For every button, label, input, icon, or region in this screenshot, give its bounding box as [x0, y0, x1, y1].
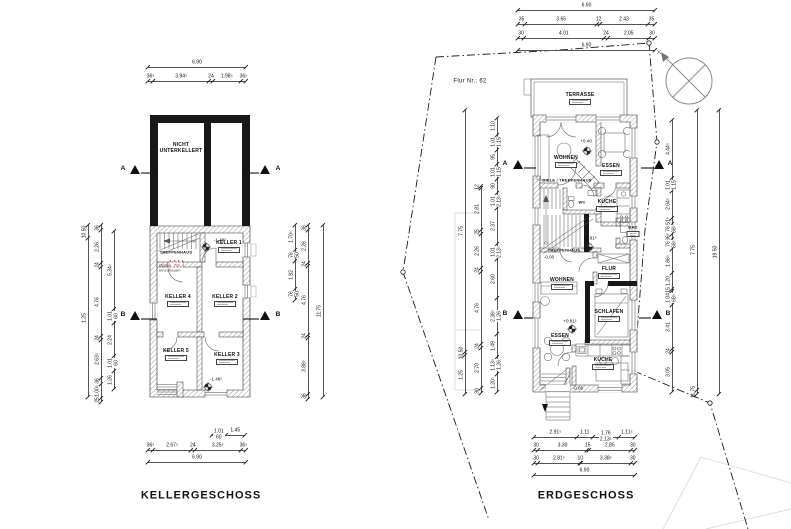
room-area-box	[216, 359, 238, 365]
room-area-box	[551, 284, 573, 290]
dim-value: 25	[95, 397, 101, 403]
dim-value: 2.70	[475, 363, 481, 373]
dim-value: 10.50	[82, 225, 88, 238]
keller-dim-top-detail: 36⁵3.94⁵241.98⁵36⁵	[148, 72, 246, 82]
level-marker-aussen: -0.86	[573, 385, 583, 390]
dim-value: 30	[475, 388, 481, 394]
room-area-box	[600, 170, 622, 176]
dim-value: 30	[630, 444, 636, 450]
dim-value: 2.26	[475, 246, 481, 256]
room-label-keller4: KELLER 4	[165, 294, 191, 300]
dim-value: 2.24	[108, 335, 114, 345]
section-letter-b: B	[666, 310, 671, 318]
keller-interior-walls	[157, 233, 243, 397]
dim-value: 24	[475, 267, 481, 273]
dim-value: 6.90	[580, 469, 590, 475]
room-label-essen-low: ESSEN	[551, 333, 569, 339]
dim-value: 12	[596, 18, 602, 24]
eg-dim-top-detail1: 353.65122.4335	[518, 15, 655, 25]
erdgeschoss-plan	[524, 79, 637, 420]
room-area-box	[167, 301, 189, 307]
dim-value: 11.75	[317, 305, 323, 317]
dim-value: 1.10	[491, 121, 497, 131]
dim-value: 1.11	[580, 431, 589, 437]
dim-line	[534, 437, 635, 438]
room-area-box	[555, 162, 577, 168]
room-label-kueche-top: KÜCHE	[598, 199, 617, 205]
eg-dim-bottom-detail2: 303.30152.8530	[534, 441, 635, 451]
dim-value: 2.05	[624, 32, 634, 38]
plan-title-erdgeschoss: ERDGESCHOSS	[538, 489, 635, 502]
dim-value: 4.76	[475, 303, 481, 313]
dim-value: 6.90	[192, 456, 202, 462]
dim-value: 35	[649, 18, 655, 24]
room-label-terrasse: TERRASSE	[566, 92, 595, 98]
room-area-box	[627, 231, 640, 237]
level-marker-wohnen: +0.40	[580, 138, 591, 143]
dim-value: 24	[475, 343, 481, 349]
dim-value: 30	[630, 457, 636, 463]
dim-value: 1.98⁵	[221, 75, 233, 81]
dim-value: 1.20⁵	[491, 377, 497, 389]
level-marker-essen: +0.81⁵	[563, 318, 576, 323]
north-arrow-icon	[657, 50, 712, 104]
dim-value: 36⁵	[147, 75, 155, 81]
eg-dim-bottom-detail1: 2.91⁵1.111.76 2.13⁵1.11⁵	[534, 428, 635, 438]
dim-line	[323, 225, 324, 397]
eg-dim-left-inner: 1.101.01 1.15951.01 1.15901.01 2.13⁵2.37…	[490, 118, 500, 392]
dim-value: 1.11⁵	[621, 431, 632, 437]
dim-value: 7.75	[691, 245, 697, 255]
dim-value: 1.13⁵ 1.26	[491, 359, 504, 371]
room-label-essen-top: ESSEN	[602, 163, 620, 169]
dim-value: 1.01 60	[213, 430, 225, 441]
eg-dim-right-outer: 19.50	[712, 110, 722, 394]
keller-thick-divider	[204, 123, 211, 226]
dim-line	[148, 450, 246, 451]
room-area-box	[598, 316, 620, 322]
dim-value: 36	[95, 225, 101, 231]
dim-value: 24	[95, 262, 101, 268]
dim-value: 36⁵	[240, 75, 248, 81]
room-label-wc: WC	[578, 201, 585, 206]
dim-value: 36⁵	[147, 444, 155, 450]
dim-value: 6.90	[582, 44, 592, 50]
dim-value: 11.75	[691, 386, 697, 398]
room-area-box	[214, 301, 236, 307]
dim-value: 2.91⁵	[549, 431, 561, 437]
dim-value: 3.88⁵	[302, 360, 308, 372]
room-label-keller3: KELLER 3	[214, 352, 240, 358]
dim-value: 6.90	[582, 4, 592, 10]
keller-dim-top-total: 6.90	[148, 58, 246, 68]
dim-value: 1.45	[230, 429, 240, 435]
dim-value: 3.38⁵	[600, 457, 612, 463]
dim-line	[481, 186, 482, 393]
room-label-wohnen-top: WOHNEN	[554, 155, 578, 161]
plan-title-kellergeschoss: KELLERGESCHOSS	[141, 489, 261, 502]
dim-value: 1.26	[108, 375, 114, 385]
dim-value: 30	[649, 32, 655, 38]
dim-value: 24	[302, 262, 308, 268]
eg-dim-left-outer: 7.7510.501.25	[458, 110, 468, 394]
dim-line	[88, 225, 89, 397]
section-letter-a: A	[503, 160, 508, 168]
dim-value: 4.01	[559, 32, 569, 38]
dim-value: 1.86⁵	[666, 255, 672, 267]
dim-value: 1.20	[666, 276, 672, 286]
dim-value: 36	[302, 225, 308, 231]
keller-dim-bottom-detail: 36⁵2.67⁵243.25⁵36⁵	[148, 441, 246, 451]
dim-line	[518, 24, 655, 25]
dim-value: 1.00⁵	[95, 385, 101, 397]
dim-value: 76 68⁵	[666, 226, 679, 234]
dim-line	[148, 81, 246, 82]
dim-value: 10	[578, 457, 584, 463]
eg-dim-top-total-a: 6.90	[518, 1, 655, 11]
dim-line	[697, 110, 698, 394]
dim-line	[534, 463, 635, 464]
keller-dim-left-outer: 10.501.25	[81, 225, 91, 397]
section-letter-b: B	[503, 310, 508, 318]
dim-value: 15	[585, 444, 591, 450]
dim-value: 2.81⁵	[553, 457, 565, 463]
dim-value: 2.67⁵	[166, 444, 178, 450]
room-area-box	[165, 355, 187, 361]
section-letter-b: B	[276, 311, 281, 319]
section-letter-b: B	[121, 311, 126, 319]
dim-value: 4.76	[95, 297, 101, 307]
optional-door-note: Option. Tür einzubauen	[159, 263, 181, 272]
dim-value: 76 50	[289, 253, 302, 259]
dim-line	[518, 50, 655, 51]
room-label-diele: DIELE / TREPPENHAUS	[542, 179, 591, 184]
dim-line	[534, 475, 635, 476]
dim-value: 24	[208, 75, 214, 81]
dim-value: 2.26	[302, 242, 308, 252]
dim-value: 3.41	[666, 322, 672, 332]
section-letter-a: A	[276, 165, 281, 173]
room-label-schlafen: SCHLAFEN	[595, 309, 624, 315]
dim-value: 1.01 1.15	[491, 137, 504, 147]
dim-value: 1.25	[82, 313, 88, 323]
dim-value: 24	[603, 32, 609, 38]
level-marker-kg-lower: -1.48⁵	[210, 376, 222, 381]
room-label-kueche-low: KÜCHE	[594, 357, 613, 363]
level-marker-stair: +0.81⁵	[583, 235, 596, 240]
room-area-box	[549, 340, 571, 346]
dim-line	[518, 10, 655, 11]
dim-value: 7.75	[459, 226, 465, 236]
eg-dim-top-detail2: 304.01242.0530	[518, 29, 655, 39]
keller-thick-walls	[150, 115, 250, 226]
dim-value: 51⁵	[666, 217, 672, 225]
dim-value: 2.43	[619, 18, 629, 24]
dim-line	[308, 225, 309, 399]
room-label-flur: FLUR	[602, 266, 616, 272]
eg-exterior-stair	[540, 370, 570, 420]
dim-value: 10.50	[459, 347, 465, 360]
room-label-treppenhaus-eg: TREPPENHAUS	[548, 249, 580, 254]
dim-value: 2.37	[491, 221, 497, 231]
dim-value: 1.92	[289, 270, 295, 280]
eg-dim-right-mid: 7.7511.75	[690, 110, 700, 394]
eg-dim-left-mid: 122.81252.26244.76242.7030	[474, 186, 484, 393]
dim-value: 1.01 2.13⁵	[491, 195, 504, 207]
dim-value: 3.05	[666, 367, 672, 377]
level-marker-diele: -0.00	[544, 254, 554, 259]
floorplan-sheet: 6.90 36⁵3.94⁵241.98⁵36⁵ 1.01 601.45 36⁵2…	[0, 0, 791, 529]
parcel-number-label: Flur Nr.: 62	[453, 78, 486, 85]
room-area-box	[598, 273, 620, 279]
room-area-box	[569, 99, 591, 105]
eg-dim-bottom-detail3: 302.81⁵103.38⁵30	[534, 454, 635, 464]
room-label-keller2: KELLER 2	[212, 294, 238, 300]
dim-value: 1.01 60	[108, 311, 121, 321]
dim-value: 24	[302, 334, 308, 340]
room-label-bad: BAD	[628, 226, 637, 231]
room-area-box	[592, 364, 614, 370]
dim-line	[148, 67, 246, 68]
room-label-nicht-unterkellert: NICHT UNTERKELLERT	[160, 142, 203, 154]
dim-value: 36	[302, 394, 308, 400]
section-letter-a: A	[668, 160, 673, 168]
keller-dim-left-mid: 362.26244.76242.63⁵361.00⁵25	[94, 225, 104, 402]
dim-value: 3.94⁵	[175, 75, 187, 81]
dim-value: 3.65	[556, 18, 566, 24]
dim-value: 12	[475, 184, 481, 190]
dim-value: 24	[190, 444, 196, 450]
dim-value: 1.04 68⁵	[666, 293, 679, 303]
dim-value: 1.25	[459, 370, 465, 380]
dim-value: 2.85	[605, 444, 615, 450]
keller-dim-left-inner: 5.34⁵1.01 602.241.01 601.26	[107, 231, 117, 389]
room-area-box	[218, 247, 240, 253]
keller-dim-right-outer: 11.75	[316, 225, 326, 397]
dim-value: 36	[95, 378, 101, 384]
dim-value: 2.63⁵	[95, 353, 101, 365]
dim-value: 35	[519, 18, 525, 24]
room-label-treppenhaus-kg: TREPPENHAUS	[160, 251, 192, 256]
neighbor-outlines	[455, 213, 791, 529]
dim-value: 1.70⁵	[289, 231, 295, 243]
eg-dim-top-total-b: 6.90	[518, 41, 655, 51]
dim-value: 5.34⁵	[108, 264, 114, 276]
dim-value: 2.04⁵	[666, 199, 672, 211]
dim-value: 6.90	[192, 61, 202, 67]
keller-dim-right-mid: 362.26244.76243.88⁵36	[301, 225, 311, 399]
section-letter-a: A	[121, 165, 126, 173]
dim-value: 4.76	[302, 295, 308, 305]
eg-dim-bottom-total: 6.90	[534, 466, 635, 476]
room-area-box	[596, 206, 618, 212]
dim-value: 25	[475, 229, 481, 235]
dim-value: 95	[491, 154, 497, 160]
dim-value: 90	[491, 183, 497, 189]
dim-value: 1.49	[491, 341, 497, 351]
dim-value: 30	[533, 457, 539, 463]
room-label-wohnen-low: WOHNEN	[550, 277, 574, 283]
dim-value: 1.01 60	[108, 358, 121, 368]
dim-line	[148, 462, 246, 463]
dim-value: 3.25⁵	[212, 444, 224, 450]
dim-value: 30	[533, 444, 539, 450]
keller-dim-right-inner: 1.70⁵76 501.9276 50	[288, 225, 298, 300]
dim-value: 30	[518, 32, 524, 38]
dim-value: 36⁵	[240, 444, 248, 450]
dim-value: 3.30	[558, 444, 568, 450]
dim-value: 2.26	[95, 242, 101, 252]
dim-value: 76 50	[289, 292, 302, 298]
dim-value: 24	[666, 348, 672, 354]
dim-value: 1.01 2.13⁵	[491, 246, 504, 258]
dim-value: 2.81	[475, 204, 481, 214]
keller-dim-bottom-windows: 1.01 601.45	[212, 426, 245, 436]
dim-line	[518, 38, 655, 39]
dim-value: 24	[95, 335, 101, 341]
dim-value: 4.44⁵	[666, 143, 672, 155]
dim-value: 2.60	[491, 274, 497, 284]
keller-dim-bottom-total: 6.90	[148, 453, 246, 463]
dim-line	[719, 110, 720, 394]
level-marker-kg-upper: -1.48⁵	[214, 237, 226, 242]
dim-value: 76 68⁵	[666, 240, 679, 248]
room-label-keller5: KELLER 5	[163, 348, 189, 354]
dim-value: 19.50	[713, 246, 719, 259]
dim-value: 2.38⁵ 1.26	[491, 311, 504, 323]
dim-value: 1.01 1.15	[666, 180, 679, 190]
dim-value: 1.01 1.15	[491, 167, 504, 177]
